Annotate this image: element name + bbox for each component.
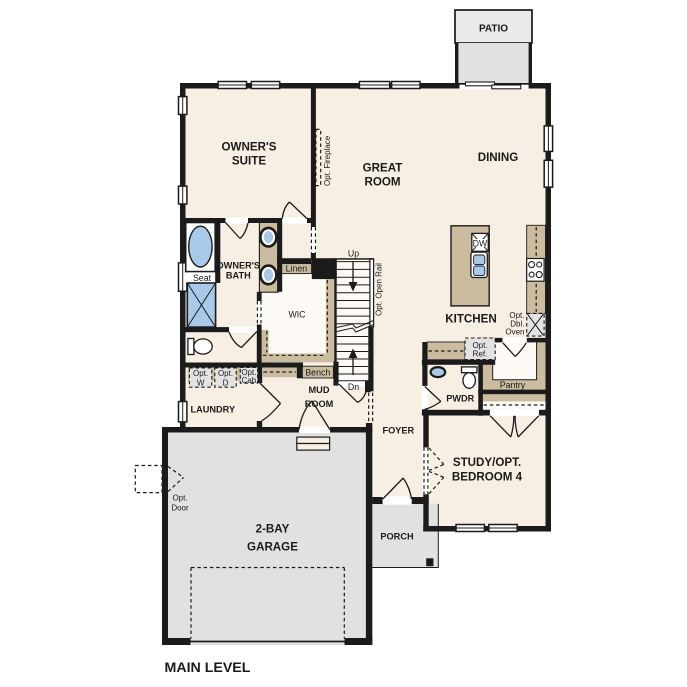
svg-text:Opt.: Opt. (218, 369, 233, 378)
svg-text:WIC: WIC (288, 310, 306, 320)
svg-text:DW: DW (473, 239, 488, 249)
svg-text:MUD: MUD (309, 385, 330, 395)
svg-text:ROOM: ROOM (305, 399, 334, 409)
svg-text:GREAT: GREAT (363, 161, 403, 174)
svg-text:D: D (223, 379, 229, 388)
svg-text:LAUNDRY: LAUNDRY (191, 405, 236, 415)
svg-text:OWNER'S: OWNER'S (217, 261, 261, 271)
svg-text:Seat: Seat (193, 273, 212, 283)
svg-text:DINING: DINING (478, 151, 519, 164)
svg-text:Ref.: Ref. (473, 350, 488, 359)
svg-text:W: W (197, 379, 205, 388)
svg-text:STUDY/OPT.: STUDY/OPT. (453, 456, 521, 469)
svg-text:BATH: BATH (226, 271, 251, 281)
svg-text:Opt. Open Rail: Opt. Open Rail (375, 263, 384, 316)
svg-text:Door: Door (171, 504, 189, 513)
svg-text:Opt.: Opt. (193, 369, 208, 378)
svg-text:FOYER: FOYER (382, 426, 414, 436)
svg-text:Pantry: Pantry (500, 380, 526, 390)
svg-text:MAIN LEVEL: MAIN LEVEL (165, 660, 251, 676)
svg-text:Cab: Cab (242, 376, 257, 385)
svg-text:Opt. Fireplace: Opt. Fireplace (323, 135, 332, 186)
svg-text:Opt.: Opt. (172, 494, 187, 503)
svg-text:BEDROOM 4: BEDROOM 4 (452, 470, 523, 483)
svg-text:2-BAY: 2-BAY (256, 523, 290, 536)
svg-text:OWNER'S: OWNER'S (222, 140, 277, 153)
svg-text:GARAGE: GARAGE (247, 541, 298, 554)
svg-text:PATIO: PATIO (479, 24, 508, 35)
svg-text:SUITE: SUITE (232, 155, 266, 168)
svg-text:PORCH: PORCH (380, 532, 414, 542)
svg-text:Up: Up (348, 249, 359, 259)
svg-text:ROOM: ROOM (364, 175, 400, 188)
svg-text:Dn: Dn (348, 382, 359, 392)
svg-text:Linen: Linen (286, 264, 308, 274)
svg-text:KITCHEN: KITCHEN (445, 313, 497, 326)
svg-text:Bench: Bench (305, 368, 330, 378)
svg-text:Oven: Oven (505, 328, 524, 337)
svg-text:PWDR: PWDR (446, 394, 474, 404)
